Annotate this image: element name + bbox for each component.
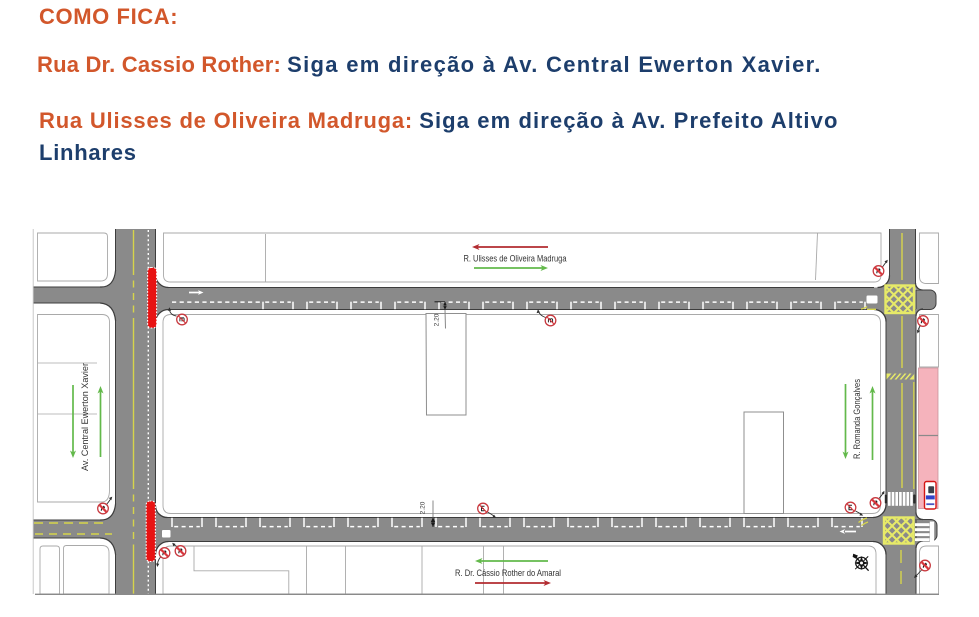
svg-text:R. Romanda Gonçalves: R. Romanda Gonçalves bbox=[852, 379, 863, 459]
svg-text:R. Dr. Cássio Rother do Amaral: R. Dr. Cássio Rother do Amaral bbox=[455, 568, 561, 578]
svg-text:Av. Central Ewerton Xavier: Av. Central Ewerton Xavier bbox=[80, 363, 91, 471]
svg-text:2.20: 2.20 bbox=[420, 501, 427, 514]
svg-text:2.20: 2.20 bbox=[434, 313, 441, 326]
svg-text:R. Ulisses de Oliveira Madruga: R. Ulisses de Oliveira Madruga bbox=[464, 254, 567, 264]
